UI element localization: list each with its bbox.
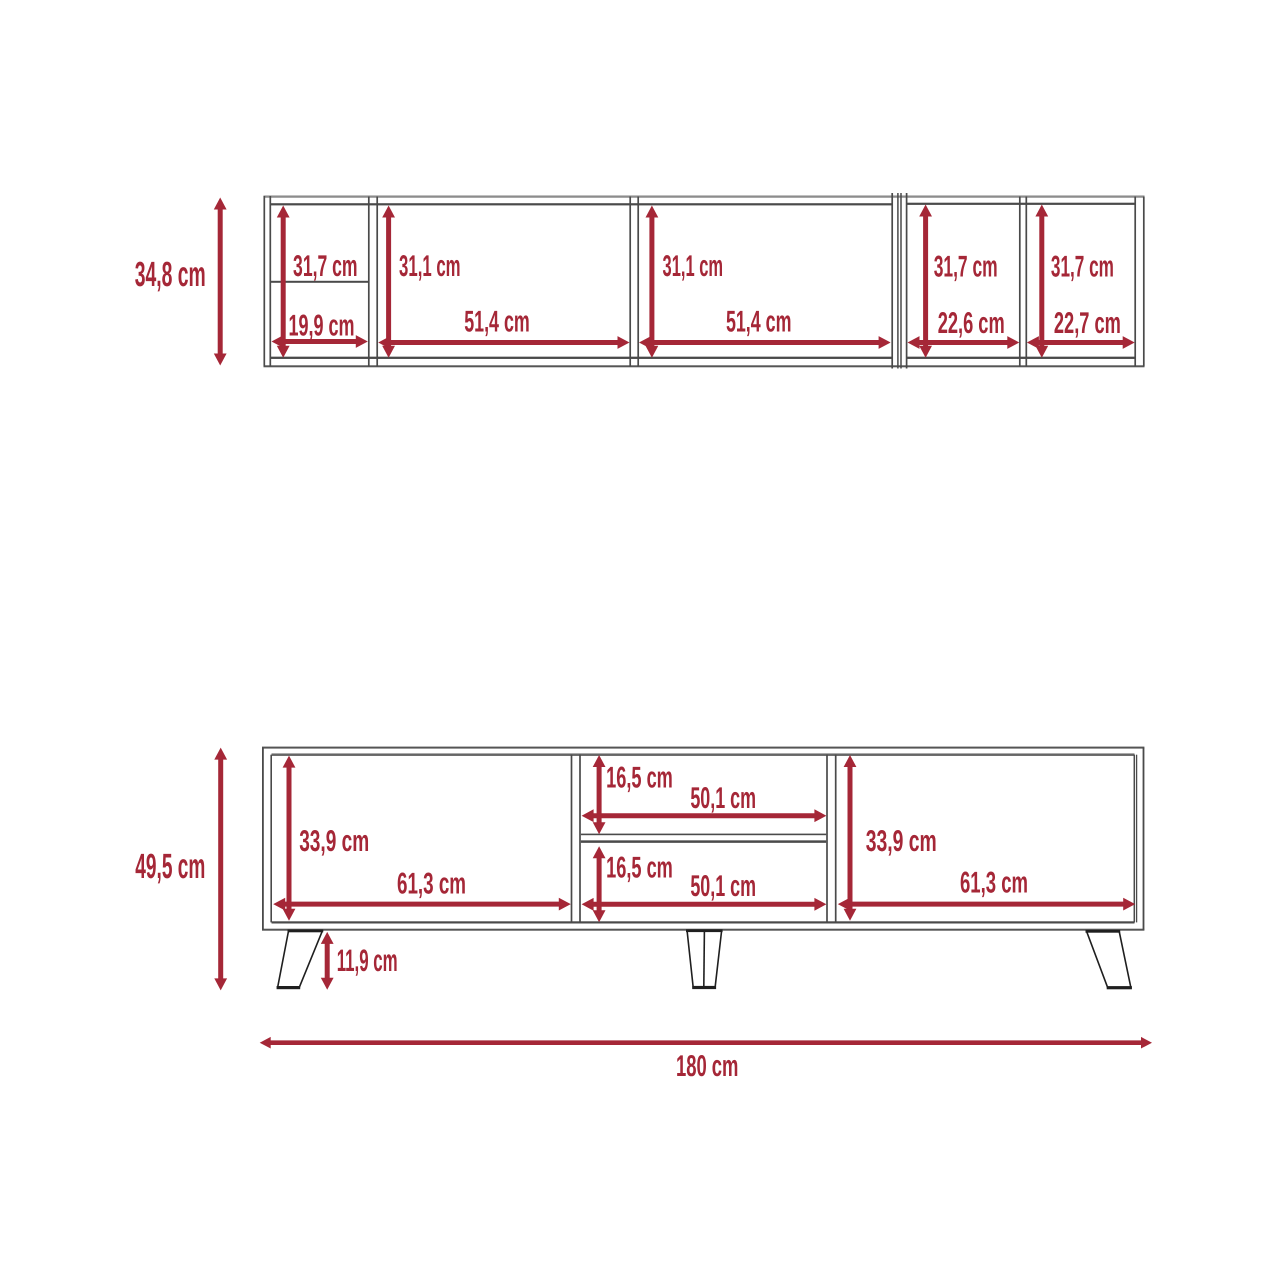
svg-text:31,1 cm: 31,1 cm bbox=[399, 250, 461, 283]
svg-text:31,1 cm: 31,1 cm bbox=[663, 250, 724, 283]
svg-text:22,6 cm: 22,6 cm bbox=[938, 307, 1005, 340]
svg-text:61,3 cm: 61,3 cm bbox=[960, 867, 1028, 900]
svg-text:31,7 cm: 31,7 cm bbox=[293, 250, 358, 283]
svg-text:31,7 cm: 31,7 cm bbox=[1051, 251, 1114, 284]
svg-text:50,1 cm: 50,1 cm bbox=[690, 870, 756, 903]
svg-text:34,8 cm: 34,8 cm bbox=[135, 255, 206, 294]
svg-text:33,9 cm: 33,9 cm bbox=[866, 825, 937, 858]
svg-text:61,3 cm: 61,3 cm bbox=[397, 867, 466, 900]
svg-text:180 cm: 180 cm bbox=[676, 1050, 739, 1083]
svg-text:51,4 cm: 51,4 cm bbox=[726, 305, 792, 338]
svg-text:50,1 cm: 50,1 cm bbox=[690, 782, 756, 815]
svg-text:16,5 cm: 16,5 cm bbox=[606, 762, 673, 795]
svg-text:33,9 cm: 33,9 cm bbox=[299, 825, 369, 858]
svg-text:11,9 cm: 11,9 cm bbox=[337, 943, 398, 978]
svg-text:19,9 cm: 19,9 cm bbox=[289, 310, 355, 343]
svg-text:49,5 cm: 49,5 cm bbox=[135, 847, 205, 886]
svg-text:22,7 cm: 22,7 cm bbox=[1054, 307, 1121, 340]
svg-text:31,7 cm: 31,7 cm bbox=[934, 251, 998, 284]
svg-text:51,4 cm: 51,4 cm bbox=[464, 305, 530, 338]
svg-text:16,5 cm: 16,5 cm bbox=[606, 851, 673, 884]
